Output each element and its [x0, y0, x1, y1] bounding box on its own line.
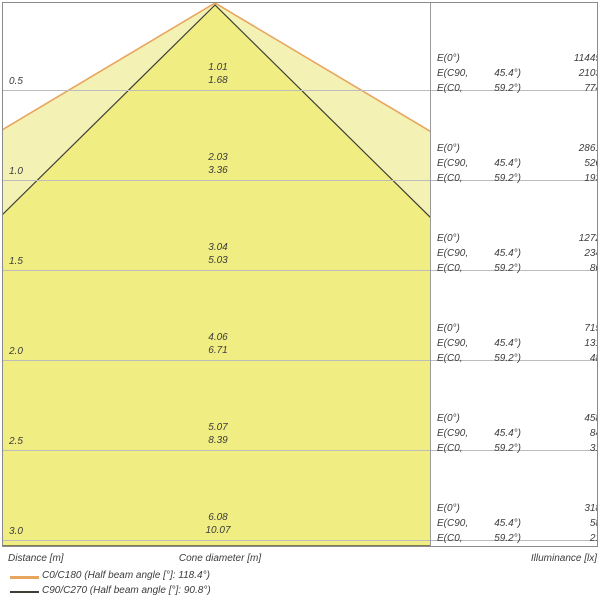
- illuminance-row-label-e0: E(0°): [437, 53, 460, 65]
- illuminance-value-e0: 715: [501, 323, 598, 335]
- illuminance-value-c90: 2103: [501, 68, 598, 80]
- x-axis-label-cone-diameter: Cone diameter [m]: [130, 553, 310, 565]
- cone-diameter-c90-c270: 6.08: [143, 511, 293, 524]
- illuminance-value-e0: 1272: [501, 233, 598, 245]
- x-axis-label-illuminance: Illuminance [lx]: [420, 553, 597, 565]
- illuminance-value-e0: 458: [501, 413, 598, 425]
- cone-diameter-c90-c270: 2.03: [143, 151, 293, 164]
- illuminance-value-c90: 58: [501, 518, 598, 530]
- cone-diameter-labels: 5.078.39: [143, 421, 293, 447]
- distance-label: 3.0: [9, 526, 23, 538]
- table-divider: [430, 3, 431, 546]
- illuminance-value-c0: 21: [501, 533, 598, 545]
- illuminance-row-label-e0: E(0°): [437, 413, 460, 425]
- x-axis-label-distance: Distance [m]: [8, 553, 64, 565]
- cone-diameter-c90-c270: 5.07: [143, 421, 293, 434]
- cone-diameter-c0-c180: 8.39: [143, 434, 293, 447]
- cone-diameter-labels: 3.045.03: [143, 241, 293, 267]
- illuminance-value-e0: 318: [501, 503, 598, 515]
- illuminance-value-e0: 11445: [501, 53, 598, 65]
- distance-label: 1.0: [9, 166, 23, 178]
- cone-diameter-c0-c180: 6.71: [143, 344, 293, 357]
- cone-diameter-c90-c270: 4.06: [143, 331, 293, 344]
- illuminance-value-c90: 84: [501, 428, 598, 440]
- illuminance-value-c0: 48: [501, 353, 598, 365]
- cone-diameter-c0-c180: 10.07: [143, 524, 293, 537]
- distance-label: 0.5: [9, 76, 23, 88]
- illuminance-value-c90: 131: [501, 338, 598, 350]
- illuminance-value-c90: 234: [501, 248, 598, 260]
- distance-label: 1.5: [9, 256, 23, 268]
- light-cone-diagram: 0.51.011.68E(0°)11445E(C90,45.4°)2103E(C…: [0, 0, 600, 600]
- cone-diameter-labels: 4.066.71: [143, 331, 293, 357]
- cone-diameter-labels: 2.033.36: [143, 151, 293, 177]
- cone-diameter-c90-c270: 3.04: [143, 241, 293, 254]
- illuminance-row-label-e0: E(0°): [437, 233, 460, 245]
- illuminance-value-c90: 526: [501, 158, 598, 170]
- plot-area: 0.51.011.68E(0°)11445E(C90,45.4°)2103E(C…: [2, 2, 598, 547]
- distance-label: 2.0: [9, 346, 23, 358]
- legend-line-c90-c270: [10, 591, 39, 593]
- cone-diameter-c0-c180: 5.03: [143, 254, 293, 267]
- cone-diameter-c90-c270: 1.01: [143, 61, 293, 74]
- illuminance-row-label-e0: E(0°): [437, 143, 460, 155]
- cone-diameter-labels: 1.011.68: [143, 61, 293, 87]
- cone-diameter-labels: 6.0810.07: [143, 511, 293, 537]
- distance-label: 2.5: [9, 436, 23, 448]
- illuminance-value-e0: 2861: [501, 143, 598, 155]
- illuminance-value-c0: 193: [501, 173, 598, 185]
- cone-diameter-c0-c180: 1.68: [143, 74, 293, 87]
- illuminance-row-label-e0: E(0°): [437, 323, 460, 335]
- illuminance-value-c0: 774: [501, 83, 598, 95]
- illuminance-value-c0: 31: [501, 443, 598, 455]
- cone-diameter-c0-c180: 3.36: [143, 164, 293, 177]
- legend-label-c0-c180: C0/C180 (Half beam angle [°]: 118.4°): [42, 570, 210, 582]
- illuminance-value-c0: 86: [501, 263, 598, 275]
- illuminance-row-label-e0: E(0°): [437, 503, 460, 515]
- legend-line-c0-c180: [10, 576, 39, 579]
- legend-label-c90-c270: C90/C270 (Half beam angle [°]: 90.8°): [42, 585, 211, 597]
